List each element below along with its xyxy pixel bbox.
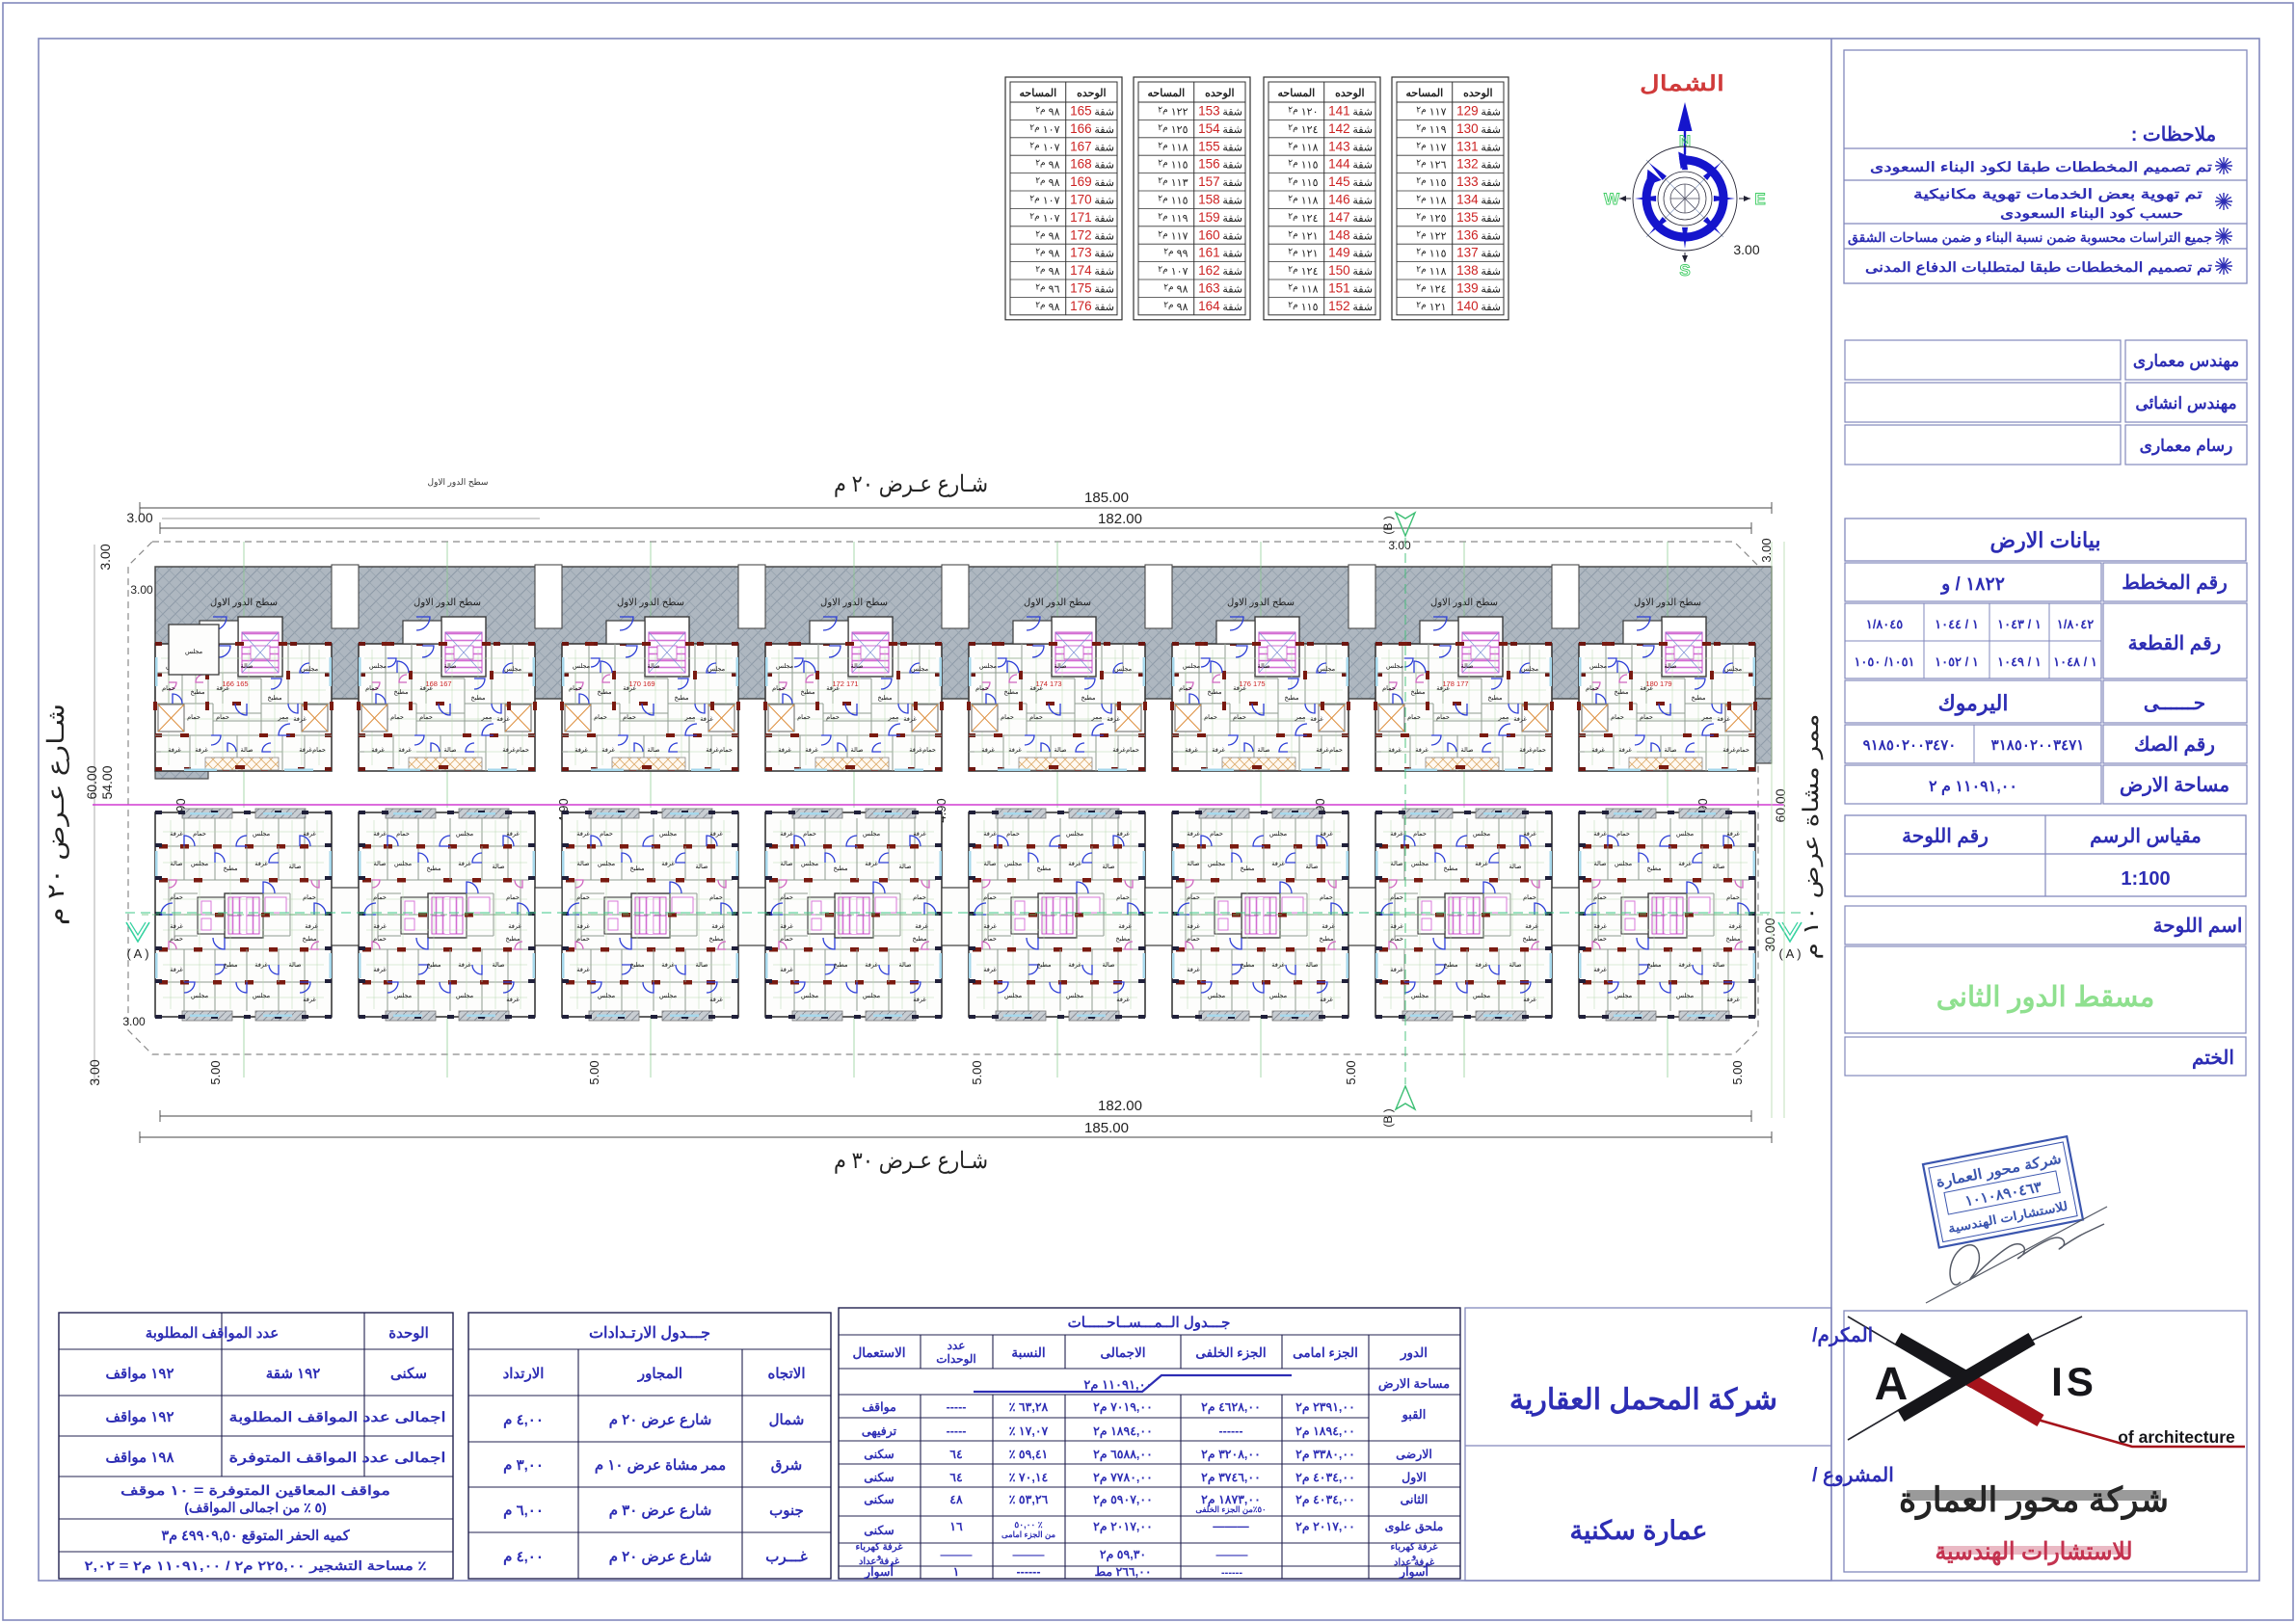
svg-text:مهندس انشائى: مهندس انشائى [2135,394,2236,413]
svg-text:5.00: 5.00 [970,1060,984,1084]
svg-text:الختم: الختم [2192,1048,2234,1070]
svg-text:3.00: 3.00 [130,583,153,597]
svg-text:١٩٨ مواقف: ١٩٨ مواقف [106,1450,175,1466]
svg-text:٤,٠٠ م: ٤,٠٠ م [503,1549,544,1565]
svg-text:المساحه: المساحه [1020,88,1057,99]
svg-text:شقة: شقة [1352,177,1373,189]
svg-text:155: 155 [1198,139,1220,153]
svg-text:٧٧٨٠,٠٠ م٢: ٧٧٨٠,٠٠ م٢ [1093,1471,1153,1485]
svg-text:156: 156 [1198,157,1220,172]
svg-text:ترفيهى: ترفيهى [862,1424,897,1439]
svg-text:شركة المحمل العقارية: شركة المحمل العقارية [1509,1384,1777,1417]
svg-text:168 167: 168 167 [425,679,451,688]
svg-text:159: 159 [1198,210,1220,225]
svg-text:------: ------ [1017,1565,1041,1579]
svg-text:مهندس معمارى: مهندس معمارى [2133,352,2239,371]
svg-text:168: 168 [1070,157,1092,172]
svg-text:سكنى: سكنى [390,1366,427,1382]
svg-text:شـارع عـرض ٢٠ م: شـارع عـرض ٢٠ م [834,471,988,497]
svg-text:133: 133 [1456,174,1479,189]
svg-text:حسب كود البناء السعودى: حسب كود البناء السعودى [2000,205,2183,222]
svg-text:ممر مشاة عرض ١٠ م: ممر مشاة عرض ١٠ م [595,1457,726,1474]
svg-text:1:100: 1:100 [2121,868,2170,890]
svg-text:شارع عرض ٢٠ م: شارع عرض ٢٠ م [609,1549,712,1565]
svg-text:-----: ----- [947,1400,967,1414]
svg-text:للاستشارات الهندسية: للاستشارات الهندسية [1936,1538,2133,1566]
svg-text:161: 161 [1198,246,1220,260]
svg-text:تم تصميم المخططات طبقا لكود ا: تم تصميم المخططات طبقا لكود البناء السعو… [1870,159,2212,175]
svg-text:151: 151 [1328,281,1350,296]
svg-text:١٨٩٤,٠٠ م٢: ١٨٩٤,٠٠ م٢ [1093,1424,1153,1439]
svg-text:اسم اللوحة: اسم اللوحة [2153,916,2243,938]
svg-text:شمال: شمال [769,1412,805,1428]
svg-text:ملحق علوى: ملحق علوى [1385,1520,1444,1534]
svg-text:------: ------ [1219,1424,1243,1438]
svg-text:3.00: 3.00 [87,1059,102,1085]
svg-text:5.00: 5.00 [587,1060,601,1084]
svg-text:167: 167 [1070,139,1092,153]
svg-text:٤,٠٠ م: ٤,٠٠ م [503,1412,544,1428]
svg-text:134: 134 [1456,193,1479,207]
svg-text:١/٨٠٤٥: ١/٨٠٤٥ [1866,617,1904,631]
svg-text:الاول: الاول [1402,1471,1427,1485]
svg-text:166 165: 166 165 [222,679,248,688]
svg-text:30.00: 30.00 [1762,918,1777,951]
svg-text:أسوار: أسوار [1399,1563,1428,1580]
svg-text:131: 131 [1456,139,1479,153]
svg-text:١٧,٠٧ ٪: ١٧,٠٧ ٪ [1009,1424,1050,1438]
svg-text:شارع عرض ٢٠ م: شارع عرض ٢٠ م [609,1412,712,1428]
svg-text:١: ١ [953,1565,960,1579]
svg-text:٣٣٨٠,٠٠ م٢: ٣٣٨٠,٠٠ م٢ [1295,1448,1355,1462]
svg-text:شقة: شقة [1222,177,1242,189]
svg-text:شقة: شقة [1481,284,1501,296]
svg-text:N: N [1679,132,1691,150]
svg-text:138: 138 [1456,263,1479,278]
svg-text:القبو: القبو [1402,1407,1427,1423]
svg-text:٧٠١٩,٠٠ م٢: ٧٠١٩,٠٠ م٢ [1093,1400,1153,1415]
svg-text:141: 141 [1328,104,1350,119]
svg-text:المكرم/: المكرم/ [1812,1325,1873,1347]
svg-text:شقة: شقة [1094,249,1114,260]
svg-text:170 169: 170 169 [628,679,654,688]
svg-text:150: 150 [1328,263,1350,278]
svg-text:شقة: شقة [1352,266,1373,278]
svg-text:شقة: شقة [1222,124,1242,136]
svg-text:شـارع عـرض ٣٠ م: شـارع عـرض ٣٠ م [834,1148,988,1174]
svg-text:٥٩,٣٠ م٢: ٥٩,٣٠ م٢ [1100,1548,1146,1562]
svg-text:٦٣,٢٨ ٪: ٦٣,٢٨ ٪ [1009,1400,1050,1414]
svg-text:٥٣,٢٦ ٪: ٥٣,٢٦ ٪ [1009,1493,1049,1506]
svg-text:شقة: شقة [1222,107,1242,119]
svg-text:شقة: شقة [1222,196,1242,207]
svg-text:٥٠٪من الجزء الخلفى: ٥٠٪من الجزء الخلفى [1195,1504,1266,1515]
svg-text:سكنى: سكنى [864,1471,894,1484]
svg-text:5.00: 5.00 [1344,1060,1358,1084]
svg-text:129: 129 [1456,104,1479,119]
svg-text:الشمال: الشمال [1640,71,1724,95]
svg-text:172 171: 172 171 [832,679,858,688]
svg-text:الاتجاه: الاتجاه [767,1366,805,1382]
svg-text:E: E [1754,190,1765,208]
svg-text:175: 175 [1070,281,1092,296]
svg-text:٦٥٨٨,٠٠ م٢: ٦٥٨٨,٠٠ م٢ [1093,1448,1153,1462]
svg-text:178 177: 178 177 [1442,679,1468,688]
svg-text:148: 148 [1328,227,1350,242]
svg-text:اجمالى عدد المواقف المتوفرة: اجمالى عدد المواقف المتوفرة [229,1450,446,1466]
svg-text:شقة: شقة [1352,302,1373,313]
svg-text:١ / ١٠٤٣: ١ / ١٠٤٣ [1997,617,2042,631]
svg-text:٤٨: ٤٨ [949,1493,964,1506]
svg-text:شقة: شقة [1481,142,1501,153]
svg-text:اليرموك: اليرموك [1938,691,2009,716]
svg-text:شقة: شقة [1352,196,1373,207]
svg-text:5.00: 5.00 [1730,1060,1745,1084]
svg-text:مساحة التشجير ٢٢٥,٠٠ م٢ / ١: مساحة التشجير ٢٢٥,٠٠ م٢ / ١١٠٩١,٠٠ م٢ = … [85,1558,427,1574]
svg-text:3.00: 3.00 [1733,242,1759,257]
svg-text:شقة: شقة [1481,160,1501,172]
svg-text:الاجمالى: الاجمالى [1100,1345,1145,1360]
svg-text:146: 146 [1328,193,1350,207]
svg-text:شقة: شقة [1094,160,1114,172]
svg-text:شـارع عـرض ٢٠ م: شـارع عـرض ٢٠ م [43,704,69,925]
svg-text:163: 163 [1198,281,1220,296]
svg-text:شقة: شقة [1481,266,1501,278]
svg-text:عدد المواقف المطلوبة: عدد المواقف المطلوبة [146,1325,280,1342]
svg-text:W: W [1604,190,1620,208]
svg-text:مواقف: مواقف [862,1400,896,1415]
svg-text:٥٩,٤١ ٪: ٥٩,٤١ ٪ [1009,1448,1049,1461]
svg-text:١ / ١٠٤٩: ١ / ١٠٤٩ [1997,654,2042,669]
svg-text:شقة: شقة [1222,213,1242,225]
svg-text:٣,٠٠ م: ٣,٠٠ م [503,1457,544,1474]
svg-text:180 179: 180 179 [1645,679,1671,688]
svg-text:137: 137 [1456,246,1479,260]
svg-text:٢٣٩١,٠٠ م٢: ٢٣٩١,٠٠ م٢ [1295,1400,1355,1415]
svg-text:الدور: الدور [1400,1345,1428,1361]
svg-text:النسبة: النسبة [1011,1345,1045,1360]
svg-text:140: 140 [1456,299,1479,313]
svg-text:الجزء الخلفى: الجزء الخلفى [1195,1345,1266,1361]
svg-text:جـــدول الارتـدادات: جـــدول الارتـدادات [589,1325,710,1343]
svg-text:142: 142 [1328,121,1350,136]
svg-text:رقم القطعة: رقم القطعة [2128,633,2222,655]
svg-text:١٩٢ مواقف: ١٩٢ مواقف [106,1409,174,1425]
svg-text:٦,٠٠ م: ٦,٠٠ م [503,1503,544,1519]
svg-text:شقة: شقة [1222,249,1242,260]
svg-text:المجاور: المجاور [637,1366,682,1382]
svg-text:162: 162 [1198,263,1220,278]
svg-text:شقة: شقة [1094,284,1114,296]
svg-text:شقة: شقة [1352,213,1373,225]
svg-text:كميه الحفر المتوقع ٤٩٩٠٩,٥٠: كميه الحفر المتوقع ٤٩٩٠٩,٥٠ م٣ [161,1529,350,1544]
svg-text:سكنى: سكنى [864,1493,894,1506]
svg-text:٥٩٠٧,٠٠ م٢: ٥٩٠٧,٠٠ م٢ [1093,1493,1153,1507]
svg-text:٤٠٣٤,٠٠ م٢: ٤٠٣٤,٠٠ م٢ [1295,1493,1355,1507]
svg-text:185.00: 185.00 [1084,490,1129,506]
svg-text:مقياس الرسم: مقياس الرسم [2090,826,2202,848]
svg-text:شقة: شقة [1222,142,1242,153]
svg-text:رقم المخطط: رقم المخطط [2122,572,2228,595]
svg-text:شقة: شقة [1481,302,1501,313]
svg-text:185.00: 185.00 [1084,1120,1129,1136]
svg-text:الثانى: الثانى [1401,1493,1428,1506]
svg-text:مسقط الدور الثانى: مسقط الدور الثانى [1936,982,2155,1014]
svg-text:مساحة الارض: مساحة الارض [1378,1376,1450,1392]
svg-text:شقة: شقة [1481,213,1501,225]
svg-text:153: 153 [1198,104,1220,119]
svg-text:165: 165 [1070,104,1092,119]
svg-text:130: 130 [1456,121,1479,136]
svg-text:رقم اللوحة: رقم اللوحة [1902,826,1989,848]
svg-text:١ / ١٠٤٤: ١ / ١٠٤٤ [1935,617,1979,631]
svg-text:164: 164 [1198,299,1220,313]
svg-text:٦٤: ٦٤ [949,1471,963,1484]
svg-text:٢٠١٧,٠٠ م٢: ٢٠١٧,٠٠ م٢ [1093,1520,1153,1534]
svg-text:شقة: شقة [1094,266,1114,278]
svg-text:غـــرب: غـــرب [765,1549,808,1565]
svg-text:من الجزء امامى: من الجزء امامى [1001,1530,1055,1540]
svg-text:شقة: شقة [1481,196,1501,207]
svg-text:مواقف المعاقين المتوفرة = ١٠: مواقف المعاقين المتوفرة = ١٠ موقف [120,1483,390,1499]
svg-text:١ / ١٠٤٨: ١ / ١٠٤٨ [2053,654,2097,669]
svg-text:شقة: شقة [1094,213,1114,225]
svg-text:شقة: شقة [1352,142,1373,153]
svg-text:ممر مشاة عرض ١٠ م: ممر مشاة عرض ١٠ م [1799,714,1824,960]
svg-text:رقم الصك: رقم الصك [2134,734,2215,757]
svg-text:A: A [1875,1359,1909,1410]
svg-text:172: 172 [1070,227,1092,242]
svg-text:عدد: عدد [948,1339,966,1352]
svg-text:(B ): (B ) [1381,516,1395,534]
svg-text:-----: ----- [947,1424,967,1438]
svg-text:173: 173 [1070,246,1092,260]
svg-text:الارتداد: الارتداد [503,1366,545,1382]
svg-text:الوحده: الوحده [1205,88,1234,99]
svg-text:شارع عرض ٣٠ م: شارع عرض ٣٠ م [609,1503,712,1519]
svg-text:157: 157 [1198,174,1220,189]
svg-text:( A ): ( A ) [126,946,148,961]
svg-text:سكنى: سكنى [864,1524,894,1537]
svg-text:جـــدول الــمـــســاحـــــات: جـــدول الــمـــســاحـــــات [1068,1315,1231,1331]
svg-text:of architecture: of architecture [2118,1427,2235,1447]
svg-text:160: 160 [1198,227,1220,242]
svg-text:مساحة الارض: مساحة الارض [2120,775,2229,797]
svg-text:٣١٨٥٠٢٠٠٣٤٧١: ٣١٨٥٠٢٠٠٣٤٧١ [1991,737,2085,754]
svg-text:شركة محور العمارة: شركة محور العمارة [1899,1481,2169,1521]
svg-text:3.00: 3.00 [126,510,152,525]
svg-text:ملاحظات :: ملاحظات : [2131,124,2217,146]
svg-text:٥٠,٠٠ ٪: ٥٠,٠٠ ٪ [1014,1520,1042,1530]
svg-text:شقة: شقة [1094,142,1114,153]
svg-text:145: 145 [1328,174,1350,189]
svg-text:شقة: شقة [1352,160,1373,172]
svg-text:٦٤: ٦٤ [949,1448,963,1461]
svg-text:شقة: شقة [1222,230,1242,242]
svg-text:3.00: 3.00 [1388,539,1411,552]
svg-text:١٦: ١٦ [949,1520,963,1533]
svg-text:تم تهوية بعض الخدمات تهوية مكا: تم تهوية بعض الخدمات تهوية مكانيكية [1913,186,2203,202]
svg-text:١٨٢٢ / و: ١٨٢٢ / و [1939,574,2005,595]
svg-text:تم تصميم المخططات طبقا لمتطلبا: تم تصميم المخططات طبقا لمتطلبات الدفاع ا… [1865,259,2212,276]
svg-text:176: 176 [1070,299,1092,313]
svg-text:(B ): (B ) [1381,1108,1395,1127]
svg-text:سطح الدور الاول: سطح الدور الاول [428,477,489,488]
svg-text:———: ——— [1213,1520,1249,1533]
svg-text:المساحه: المساحه [1406,88,1444,99]
svg-text:الوحده: الوحده [1077,88,1106,99]
svg-text:5.00: 5.00 [208,1060,223,1084]
svg-text:شقة: شقة [1352,284,1373,296]
svg-text:174: 174 [1070,263,1092,278]
svg-text:٢٦٦,٠٠ مط: ٢٦٦,٠٠ مط [1094,1565,1151,1579]
svg-text:شقة: شقة [1481,124,1501,136]
svg-text:الجزء امامى: الجزء امامى [1293,1345,1358,1361]
svg-text:174 173: 174 173 [1035,679,1061,688]
svg-text:٧٠,١٤ ٪: ٧٠,١٤ ٪ [1009,1471,1049,1484]
svg-text:شقة: شقة [1094,302,1114,313]
svg-text:مجلس: مجلس [185,648,203,655]
svg-text:S: S [1679,261,1690,279]
svg-text:٤٠٣٤,٠٠ م٢: ٤٠٣٤,٠٠ م٢ [1295,1471,1355,1485]
svg-text:المشروع /: المشروع / [1812,1465,1894,1487]
svg-text:شقة: شقة [1352,249,1373,260]
svg-text:شقة: شقة [1481,107,1501,119]
svg-text:شقة: شقة [1222,302,1242,313]
svg-text:الوحده: الوحده [1335,88,1364,99]
svg-text:169: 169 [1070,174,1092,189]
svg-text:شقة: شقة [1481,249,1501,260]
svg-text:139: 139 [1456,281,1479,296]
svg-text:———: ——— [941,1550,973,1561]
svg-text:176 175: 176 175 [1239,679,1265,688]
svg-text:شقة: شقة [1094,124,1114,136]
svg-text:135: 135 [1456,210,1479,225]
svg-text:182.00: 182.00 [1098,511,1142,527]
svg-text:أسوار: أسوار [864,1563,894,1580]
svg-text:------: ------ [1221,1567,1242,1579]
svg-text:١٠٥١/ ١٠٥٠: ١٠٥١/ ١٠٥٠ [1854,654,1914,669]
svg-text:شقة: شقة [1352,107,1373,119]
svg-text:شقة: شقة [1481,177,1501,189]
svg-text:المساحه: المساحه [1148,88,1186,99]
svg-text:١٨٩٤,٠٠ م٢: ١٨٩٤,٠٠ م٢ [1295,1424,1355,1439]
svg-text:الوحدات: الوحدات [936,1352,976,1367]
svg-text:149: 149 [1328,246,1350,260]
svg-text:182.00: 182.00 [1098,1098,1142,1114]
svg-text:شقة: شقة [1094,177,1114,189]
svg-text:الوحدة: الوحدة [388,1325,429,1342]
svg-text:158: 158 [1198,193,1220,207]
svg-text:حــــــى: حــــــى [2144,693,2205,714]
svg-text:132: 132 [1456,157,1479,172]
svg-text:سكنى: سكنى [864,1448,894,1461]
svg-text:171: 171 [1070,210,1092,225]
svg-text:اجمالى عدد المواقف المطلوبة: اجمالى عدد المواقف المطلوبة [229,1409,446,1425]
svg-text:المساحه: المساحه [1278,88,1316,99]
svg-text:١/٨٠٤٢: ١/٨٠٤٢ [2057,617,2095,631]
svg-text:جنوب: جنوب [769,1503,804,1519]
svg-text:شرق: شرق [771,1457,802,1474]
svg-text:الاستعمال: الاستعمال [852,1345,905,1360]
svg-text:شقة: شقة [1094,230,1114,242]
svg-text:عمارة سكنية: عمارة سكنية [1570,1516,1708,1547]
svg-text:170: 170 [1070,193,1092,207]
svg-text:3.00: 3.00 [122,1015,146,1028]
svg-text:الوحده: الوحده [1463,88,1492,99]
svg-text:٢٠١٧,٠٠ م٢: ٢٠١٧,٠٠ م٢ [1295,1520,1355,1534]
svg-text:١٩٢ مواقف: ١٩٢ مواقف [106,1366,174,1382]
svg-text:٣٢٠٨,٠٠ م٢: ٣٢٠٨,٠٠ م٢ [1201,1448,1261,1462]
svg-text:60.00: 60.00 [1773,788,1788,822]
svg-text:152: 152 [1328,299,1350,313]
svg-text:147: 147 [1328,210,1350,225]
svg-text:رسام معمارى: رسام معمارى [2140,437,2233,456]
svg-text:بيانات الارض: بيانات الارض [1990,528,2101,553]
svg-text:166: 166 [1070,121,1092,136]
svg-text:———: ——— [1216,1550,1248,1561]
svg-text:١١٠٩١,٠٠ م ٢: ١١٠٩١,٠٠ م ٢ [1929,779,2017,796]
svg-text:شقة: شقة [1352,124,1373,136]
svg-text:٣٧٤٦,٠٠ م٢: ٣٧٤٦,٠٠ م٢ [1201,1471,1261,1485]
svg-text:(٥ ٪ من اجمالى المواقف): (٥ ٪ من اجمالى المواقف) [184,1500,327,1516]
svg-text:136: 136 [1456,227,1479,242]
svg-text:شقة: شقة [1094,196,1114,207]
svg-text:———: ——— [1013,1550,1045,1561]
svg-text:154: 154 [1198,121,1220,136]
svg-text:١٩٢ شقة: ١٩٢ شقة [266,1366,321,1382]
svg-text:3.00: 3.00 [97,544,113,570]
svg-text:شقة: شقة [1352,230,1373,242]
svg-text:شقة: شقة [1481,230,1501,242]
svg-text:IS: IS [2051,1359,2097,1404]
svg-text:١١٠٩١,٠٠ م٢: ١١٠٩١,٠٠ م٢ [1083,1377,1152,1393]
svg-text:54.00: 54.00 [99,765,115,799]
svg-text:٤٦٢٨,٠٠ م٢: ٤٦٢٨,٠٠ م٢ [1201,1400,1261,1415]
svg-text:١ / ١٠٥٢: ١ / ١٠٥٢ [1935,654,1979,669]
svg-text:143: 143 [1328,139,1350,153]
svg-text:شقة: شقة [1094,107,1114,119]
svg-text:الارضى: الارضى [1396,1448,1432,1462]
svg-text:144: 144 [1328,157,1350,172]
svg-text:٩١٨٥٠٢٠٠٣٤٧٠: ٩١٨٥٠٢٠٠٣٤٧٠ [1863,737,1957,754]
svg-text:جميع التراسات محسوبة ضمن نسبة: جميع التراسات محسوبة ضمن نسبة البناء و ض… [1848,230,2212,246]
svg-text:60.00: 60.00 [84,765,99,799]
svg-text:شقة: شقة [1222,160,1242,172]
svg-text:شقة: شقة [1222,284,1242,296]
svg-text:شقة: شقة [1222,266,1242,278]
